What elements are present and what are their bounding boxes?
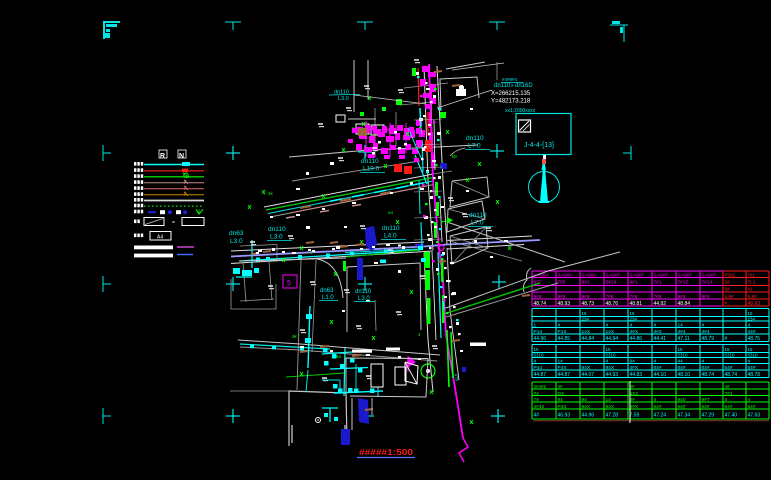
svg-text:47.24: 47.24	[654, 413, 667, 419]
svg-text:#4#9#4: #4#9#4	[502, 77, 518, 82]
svg-text:k9: k9	[452, 154, 457, 159]
svg-text:48.73: 48.73	[582, 301, 595, 307]
svg-text:47.34: 47.34	[678, 413, 691, 419]
svg-text:64#: 64#	[725, 404, 733, 410]
svg-text:14X: 14X	[582, 329, 591, 335]
svg-text:7#1: 7#1	[654, 280, 662, 286]
svg-text:7#1: 7#1	[725, 391, 733, 397]
svg-text:4: 4	[725, 397, 728, 403]
svg-text:5X2: 5X2	[630, 391, 639, 397]
svg-text:48.78: 48.78	[748, 372, 761, 378]
svg-text:4: 4	[558, 322, 561, 328]
svg-text:L7.0: L7.0	[471, 220, 484, 227]
svg-text:48.84: 48.84	[678, 301, 691, 307]
svg-text:4: 4	[534, 358, 537, 364]
svg-text:1: 1	[534, 322, 537, 328]
svg-text:dn16D: dn16D	[515, 83, 533, 89]
svg-text:64#: 64#	[725, 365, 733, 371]
svg-text:7#8: 7#8	[630, 294, 638, 300]
svg-text:L3.0: L3.0	[230, 238, 243, 245]
svg-text:47.28: 47.28	[606, 413, 619, 419]
svg-text:a4: a4	[388, 210, 394, 215]
svg-text:4: 4	[630, 322, 633, 328]
svg-text:4: 4	[748, 397, 751, 403]
svg-text:64#: 64#	[678, 365, 686, 371]
svg-text:4#1: 4#1	[630, 280, 638, 286]
svg-text:X=266215.135: X=266215.135	[491, 91, 531, 97]
svg-text:dn110: dn110	[469, 212, 487, 219]
svg-text:5#: 5#	[725, 287, 731, 293]
svg-text:dn110: dn110	[466, 135, 484, 142]
svg-text:9#4: 9#4	[702, 294, 710, 300]
svg-text:7#8: 7#8	[654, 294, 662, 300]
svg-text:14X: 14X	[606, 329, 615, 335]
svg-text:14: 14	[558, 358, 564, 364]
svg-text:dn110: dn110	[361, 158, 379, 165]
svg-text:64#: 64#	[654, 365, 662, 371]
svg-text:64#: 64#	[748, 404, 756, 410]
svg-text:4#X: 4#X	[630, 329, 639, 335]
svg-text:4#42: 4#42	[534, 404, 545, 410]
svg-text:4: 4	[654, 358, 657, 364]
svg-text:94: 94	[630, 358, 636, 364]
svg-text:48.10: 48.10	[678, 372, 691, 378]
svg-text:5-A5#7: 5-A5#7	[630, 272, 645, 277]
svg-text:4: 4	[748, 322, 751, 328]
svg-text:15: 15	[534, 347, 540, 352]
svg-text:A4: A4	[157, 235, 163, 241]
svg-text:48.74: 48.74	[702, 372, 715, 378]
svg-text:4a: 4a	[336, 354, 342, 359]
svg-text:5-A5#7: 5-A5#7	[702, 272, 717, 277]
svg-text:94X: 94X	[582, 404, 591, 410]
svg-text:44.87: 44.87	[534, 372, 547, 378]
svg-text:4k: 4k	[268, 191, 274, 196]
svg-text:9#8: 9#8	[534, 294, 542, 300]
svg-text:234: 234	[748, 316, 756, 321]
svg-text:9#7: 9#7	[702, 397, 710, 403]
svg-text:64#: 64#	[654, 404, 662, 410]
svg-text:64#: 64#	[678, 404, 686, 410]
svg-text:234: 234	[630, 316, 638, 321]
svg-text:5310: 5310	[678, 353, 689, 358]
svg-text:dn110: dn110	[494, 83, 511, 89]
svg-text:4.8#: 4.8#	[725, 294, 735, 300]
svg-text:4#4#2: 4#4#2	[534, 384, 547, 389]
svg-text:#4: #4	[534, 391, 540, 397]
svg-text:46.93: 46.93	[558, 413, 571, 419]
svg-text:4: 4	[606, 322, 609, 328]
svg-text:5-A5#A: 5-A5#A	[582, 272, 597, 277]
svg-text:dn110: dn110	[382, 225, 400, 232]
svg-text:D3: D3	[558, 391, 564, 397]
svg-text:79: 79	[534, 397, 540, 403]
svg-text:L3.0: L3.0	[270, 234, 283, 241]
svg-text:dn63: dn63	[320, 288, 334, 294]
svg-text:9.8#: 9.8#	[748, 294, 758, 300]
svg-text:4: 4	[606, 358, 609, 364]
svg-text:94: 94	[558, 397, 564, 403]
svg-text:dn63: dn63	[229, 230, 244, 237]
svg-text:=: =	[172, 220, 175, 226]
svg-text:4#4: 4#4	[678, 329, 686, 335]
svg-text:234: 234	[582, 316, 590, 321]
svg-text:44.87: 44.87	[558, 372, 571, 378]
svg-text:9#8: 9#8	[582, 294, 590, 300]
svg-text:4#: 4#	[558, 384, 564, 389]
svg-text:15: 15	[748, 311, 754, 316]
svg-text:47.11: 47.11	[678, 336, 690, 342]
svg-text:#####1:500: #####1:500	[359, 448, 414, 457]
svg-text:15: 15	[582, 311, 588, 316]
svg-text:94X: 94X	[582, 365, 591, 371]
svg-text:48.93: 48.93	[558, 301, 571, 307]
svg-text:47.29: 47.29	[702, 413, 715, 419]
svg-text:44.94: 44.94	[606, 336, 619, 342]
svg-text:P1X: P1X	[558, 329, 568, 335]
svg-text:44: 44	[678, 358, 684, 364]
svg-text:P4X: P4X	[558, 404, 568, 410]
svg-text:4#X: 4#X	[630, 404, 639, 410]
svg-text:44.85: 44.85	[558, 336, 571, 342]
svg-text:64#: 64#	[702, 404, 710, 410]
svg-text:4#4: 4#4	[702, 329, 710, 335]
svg-text:4#X: 4#X	[630, 365, 639, 371]
svg-text:15: 15	[725, 347, 731, 352]
svg-text:R: R	[160, 153, 165, 160]
svg-text:15: 15	[606, 347, 612, 352]
svg-text:785: 785	[558, 280, 566, 286]
svg-text:9#8: 9#8	[678, 294, 686, 300]
svg-text:14: 14	[606, 397, 612, 403]
svg-text:7#8: 7#8	[606, 294, 614, 300]
svg-text:7#14: 7#14	[702, 280, 713, 286]
svg-text:94X: 94X	[606, 404, 615, 410]
svg-text:44.86: 44.86	[630, 336, 643, 342]
svg-text:44.96: 44.96	[534, 336, 547, 342]
svg-text:44.41: 44.41	[654, 336, 667, 342]
svg-text:5310: 5310	[606, 353, 617, 358]
svg-text:44.10: 44.10	[654, 372, 667, 378]
svg-text:7#12: 7#12	[678, 280, 689, 286]
svg-text:48.76: 48.76	[606, 301, 619, 307]
svg-text:7L1: 7L1	[748, 280, 756, 286]
svg-text:5310: 5310	[534, 353, 545, 358]
svg-text:15: 15	[678, 347, 684, 352]
svg-text:5310: 5310	[725, 353, 736, 358]
svg-text:5-A5#7: 5-A5#7	[606, 272, 621, 277]
svg-text:5-A5#7: 5-A5#7	[678, 272, 693, 277]
svg-text:48.81: 48.81	[630, 301, 643, 307]
svg-text:5#: 5#	[725, 280, 731, 286]
svg-text:5-A5#7: 5-A5#7	[654, 272, 669, 277]
svg-text:940: 940	[678, 397, 686, 403]
svg-text:44.93: 44.93	[606, 372, 619, 378]
svg-text:dn110: dn110	[268, 226, 286, 233]
svg-text:4: 4	[418, 332, 421, 337]
svg-text:48.75: 48.75	[748, 336, 761, 342]
svg-text:L19.0: L19.0	[363, 166, 380, 173]
svg-text:4#2: 4#2	[654, 329, 662, 335]
svg-text:P5#2: P5#2	[725, 272, 736, 277]
svg-text:#: #	[725, 301, 728, 307]
svg-text:48.74: 48.74	[534, 301, 547, 307]
svg-text:L4.0: L4.0	[384, 233, 397, 240]
svg-text:64#: 64#	[748, 365, 756, 371]
svg-text:4: 4	[654, 322, 657, 328]
svg-text:L7.0: L7.0	[468, 143, 481, 150]
svg-text:5419: 5419	[606, 280, 617, 286]
svg-text:44.84: 44.84	[582, 336, 595, 342]
svg-text:4#: 4#	[725, 384, 731, 389]
svg-text:94: 94	[582, 397, 588, 403]
svg-text:48.79: 48.79	[702, 336, 715, 342]
svg-text:5310: 5310	[748, 353, 759, 358]
svg-text:x: x	[511, 83, 514, 89]
svg-text:N: N	[179, 153, 184, 160]
svg-text:15: 15	[748, 347, 754, 352]
svg-text:P14: P14	[534, 329, 543, 335]
svg-text:44.96: 44.96	[582, 413, 595, 419]
svg-text:L3.0: L3.0	[338, 96, 349, 102]
svg-text:44.07: 44.07	[582, 372, 595, 378]
svg-text:#: #	[725, 336, 728, 342]
svg-text:44.83: 44.83	[630, 372, 643, 378]
svg-text:3-A5#A: 3-A5#A	[558, 272, 573, 277]
svg-text:dn110: dn110	[355, 289, 372, 295]
svg-text:48.74: 48.74	[725, 372, 738, 378]
svg-text:48.63: 48.63	[748, 301, 761, 307]
svg-text:9k: 9k	[292, 334, 298, 339]
svg-text:15: 15	[630, 311, 636, 316]
svg-text:P4X: P4X	[558, 365, 568, 371]
svg-text:#1: #1	[748, 287, 754, 293]
svg-text:44#: 44#	[748, 329, 756, 335]
svg-text:942: 942	[582, 280, 590, 286]
svg-text:7#1: 7#1	[748, 272, 756, 277]
svg-text:7.59: 7.59	[630, 413, 640, 419]
svg-text:4: 4	[748, 358, 751, 364]
svg-text:J-4-4-[13]: J-4-4-[13]	[524, 142, 554, 149]
svg-text:9#8: 9#8	[558, 294, 566, 300]
svg-text:4: 4	[654, 397, 657, 403]
svg-text:47.40: 47.40	[725, 413, 738, 419]
svg-text:Y=482173.218: Y=482173.218	[491, 99, 531, 105]
svg-text:P44: P44	[534, 365, 543, 371]
svg-text:44.92: 44.92	[654, 301, 667, 307]
svg-text:64#: 64#	[702, 365, 710, 371]
svg-text:5: 5	[287, 280, 291, 287]
svg-text:4: 4	[702, 322, 705, 328]
svg-text:94X: 94X	[606, 365, 615, 371]
svg-text:4#: 4#	[534, 413, 540, 419]
svg-text:47.63: 47.63	[748, 413, 761, 419]
svg-text:4: 4	[702, 358, 705, 364]
svg-text:14: 14	[678, 322, 684, 328]
